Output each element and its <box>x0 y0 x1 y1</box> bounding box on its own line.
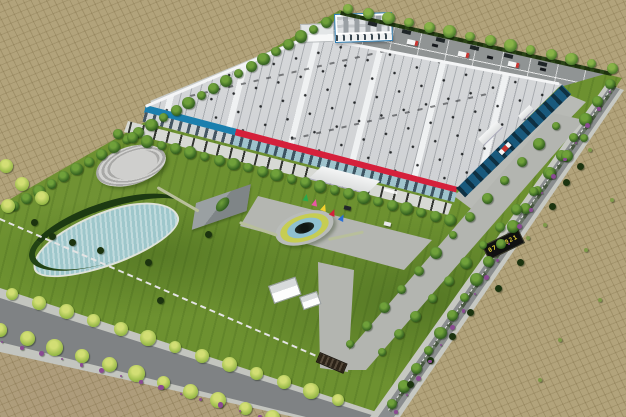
tree-icon <box>35 191 49 205</box>
palm-tree-icon <box>283 39 294 50</box>
bush-icon <box>205 231 212 238</box>
flower-bush-icon <box>450 325 455 330</box>
palm-tree-icon <box>145 119 158 132</box>
dock-truck <box>498 142 511 156</box>
flower-bush-icon <box>563 158 567 162</box>
palm-tree-icon <box>309 25 318 34</box>
palm-tree-icon <box>257 53 270 66</box>
palm-tree-icon <box>47 179 56 188</box>
truck <box>458 51 470 58</box>
flower-bush-icon <box>597 107 601 111</box>
tree-icon <box>32 296 46 310</box>
palm-tree-icon <box>387 399 396 408</box>
palm-tree-icon <box>21 193 32 204</box>
parked-trailer <box>368 21 378 27</box>
palm-tree-icon <box>592 96 603 107</box>
flower-bush-icon <box>440 344 442 346</box>
shrub-icon <box>584 248 588 252</box>
tree-icon <box>87 314 99 326</box>
bush-icon <box>157 297 164 304</box>
tree-icon <box>526 45 535 54</box>
palm-tree-icon <box>208 83 219 94</box>
tree-icon <box>15 177 29 191</box>
tree-icon <box>195 349 209 363</box>
palm-tree-icon <box>580 134 588 142</box>
flower-bush-icon <box>428 360 432 364</box>
palm-tree-icon <box>270 169 283 182</box>
tree-icon <box>59 304 75 320</box>
palm-tree-icon <box>460 293 469 302</box>
palm-tree-icon <box>257 166 268 177</box>
shrub-icon <box>588 148 592 152</box>
flower-bush-icon <box>120 375 122 377</box>
tree-icon <box>46 339 63 356</box>
tree-icon <box>343 4 352 13</box>
palm-tree-icon <box>387 200 398 211</box>
palm-tree-icon <box>314 180 327 193</box>
palm-tree-icon <box>234 69 243 78</box>
palm-tree-icon <box>533 138 545 150</box>
palm-tree-icon <box>552 122 560 130</box>
tree-icon <box>465 32 474 41</box>
tree-icon <box>443 25 456 38</box>
flower-bush-icon <box>517 224 522 229</box>
tree-icon <box>587 59 596 68</box>
palm-tree-icon <box>430 211 441 222</box>
palm-tree-icon <box>300 177 311 188</box>
palm-tree-icon <box>184 146 197 159</box>
palm-tree-icon <box>214 155 225 166</box>
tree-icon <box>363 8 374 19</box>
tree-icon <box>169 341 181 353</box>
palm-tree-icon <box>271 47 280 56</box>
tree-icon <box>382 12 395 25</box>
tree-icon <box>239 402 252 415</box>
flower-bush-icon <box>199 398 203 402</box>
car <box>487 55 494 59</box>
tree-icon <box>332 394 344 406</box>
truck <box>508 61 520 68</box>
flower-bush-icon <box>416 376 421 381</box>
flower-bush-icon <box>551 174 556 179</box>
bush-icon <box>495 285 502 292</box>
palm-tree-icon <box>182 97 195 110</box>
palm-tree-icon <box>287 174 296 183</box>
bush-icon <box>407 381 414 388</box>
flower-bush-icon <box>139 380 143 384</box>
bush-icon <box>467 309 474 316</box>
palm-tree-icon <box>465 212 475 222</box>
palm-tree-icon <box>410 311 422 323</box>
palm-tree-icon <box>113 129 122 138</box>
shrub-icon <box>543 223 547 227</box>
flower-bush-icon <box>484 275 489 280</box>
aerial-render-canvas: 07-2021 <box>0 0 626 417</box>
palm-tree-icon <box>529 187 537 195</box>
bush-icon <box>449 333 456 340</box>
palm-tree-icon <box>605 79 614 88</box>
palm-tree-icon <box>295 30 308 43</box>
flower-bush-icon <box>99 368 104 373</box>
shrub-icon <box>598 298 602 302</box>
shrub-icon <box>610 198 614 202</box>
palm-tree-icon <box>171 105 182 116</box>
tree-icon <box>404 18 413 27</box>
palm-tree-icon <box>84 157 93 166</box>
palm-tree-icon <box>511 204 523 216</box>
tree-icon <box>183 384 198 399</box>
parked-trailer <box>504 53 514 59</box>
palm-tree-icon <box>373 197 382 206</box>
flower-bush-icon <box>609 91 611 93</box>
tree-icon <box>485 35 496 46</box>
tree-icon <box>265 410 280 417</box>
tree-icon <box>277 375 291 389</box>
tree-icon <box>6 288 18 300</box>
parked-trailer <box>402 29 412 35</box>
car <box>540 67 547 71</box>
bush-icon <box>549 203 556 210</box>
palm-tree-icon <box>414 266 424 276</box>
palm-tree-icon <box>157 141 166 150</box>
palm-tree-icon <box>243 163 252 172</box>
tree-icon <box>140 330 156 346</box>
palm-tree-icon <box>96 149 107 160</box>
palm-tree-icon <box>416 208 425 217</box>
tree-icon <box>424 22 435 33</box>
parked-trailer <box>538 61 548 67</box>
tree-icon <box>565 53 578 66</box>
palm-tree-icon <box>70 163 83 176</box>
palm-tree-icon <box>197 91 206 100</box>
flower-bush-icon <box>158 385 163 390</box>
palm-tree-icon <box>479 241 487 249</box>
palm-tree-icon <box>569 133 578 142</box>
palm-tree-icon <box>500 176 508 184</box>
car <box>344 205 352 210</box>
palm-tree-icon <box>141 135 154 148</box>
palm-tree-icon <box>449 231 457 239</box>
palm-tree-icon <box>394 329 404 339</box>
flower-bush-icon <box>496 259 500 263</box>
bush-icon <box>563 179 570 186</box>
flower-bush-icon <box>585 123 590 128</box>
tree-icon <box>303 383 319 399</box>
tree-icon <box>504 39 517 52</box>
palm-tree-icon <box>483 256 494 267</box>
tree-icon <box>114 322 128 336</box>
palm-tree-icon <box>470 273 483 286</box>
flower-bush-icon <box>508 243 510 245</box>
palm-tree-icon <box>321 17 332 28</box>
parked-trailer <box>436 37 446 43</box>
flower-bush-icon <box>541 192 543 194</box>
bush-icon <box>49 233 56 240</box>
bush-icon <box>31 219 38 226</box>
bush-icon <box>517 259 524 266</box>
palm-tree-icon <box>227 158 240 171</box>
shrub-icon <box>526 236 530 240</box>
palm-tree-icon <box>357 191 370 204</box>
shrub-icon <box>558 338 562 342</box>
tree-icon <box>607 63 618 74</box>
car <box>384 221 392 226</box>
truck <box>407 39 419 46</box>
flower-bush-icon <box>218 402 223 407</box>
palm-tree-icon <box>424 346 433 355</box>
tree-icon <box>0 159 13 173</box>
bush-icon <box>69 239 76 246</box>
palm-tree-icon <box>397 285 405 293</box>
palm-tree-icon <box>58 171 69 182</box>
palm-tree-icon <box>428 294 436 302</box>
palm-tree-icon <box>444 214 457 227</box>
flower-bush-icon <box>462 309 466 313</box>
palm-tree-icon <box>434 327 447 340</box>
flower-bush-icon <box>39 351 44 356</box>
palm-tree-icon <box>411 363 422 374</box>
tree-icon <box>546 49 557 60</box>
tree-icon <box>20 331 35 346</box>
shrub-icon <box>538 378 542 382</box>
palm-tree-icon <box>159 113 168 122</box>
palm-tree-icon <box>362 321 372 331</box>
flower-bush-icon <box>61 358 63 360</box>
palm-tree-icon <box>444 276 454 286</box>
bush-icon <box>97 247 104 254</box>
tree-icon <box>0 323 7 336</box>
flower-bush-icon <box>394 410 398 414</box>
tree-icon <box>222 357 238 373</box>
flower-bush-icon <box>529 208 533 212</box>
palm-tree-icon <box>400 202 413 215</box>
vegetation-and-vehicles <box>0 0 626 417</box>
palm-tree-icon <box>220 75 233 88</box>
palm-tree-icon <box>170 143 181 154</box>
tree-icon <box>1 199 15 213</box>
flower-bush-icon <box>1 341 3 343</box>
flower-bush-icon <box>180 393 182 395</box>
palm-tree-icon <box>495 222 505 232</box>
palm-tree-icon <box>482 193 494 205</box>
flower-bush-icon <box>575 142 577 144</box>
palm-tree-icon <box>330 185 339 194</box>
palm-tree-icon <box>200 152 209 161</box>
parked-trailer <box>470 45 480 51</box>
bush-icon <box>577 163 584 170</box>
bush-icon <box>145 259 152 266</box>
flower-bush-icon <box>474 293 476 295</box>
palm-tree-icon <box>379 302 391 314</box>
flower-bush-icon <box>80 363 84 367</box>
tree-icon <box>75 349 88 362</box>
palm-tree-icon <box>108 141 121 154</box>
palm-tree-icon <box>496 239 505 248</box>
palm-tree-icon <box>460 257 472 269</box>
palm-tree-icon <box>246 61 257 72</box>
palm-tree-icon <box>517 157 527 167</box>
palm-tree-icon <box>378 348 386 356</box>
flower-bush-icon <box>20 346 24 350</box>
palm-tree-icon <box>346 340 354 348</box>
car <box>432 43 439 47</box>
palm-tree-icon <box>430 247 442 259</box>
tree-icon <box>250 367 262 379</box>
palm-tree-icon <box>447 310 458 321</box>
palm-tree-icon <box>127 132 138 143</box>
palm-tree-icon <box>343 188 354 199</box>
flower-bush-icon <box>406 394 408 396</box>
